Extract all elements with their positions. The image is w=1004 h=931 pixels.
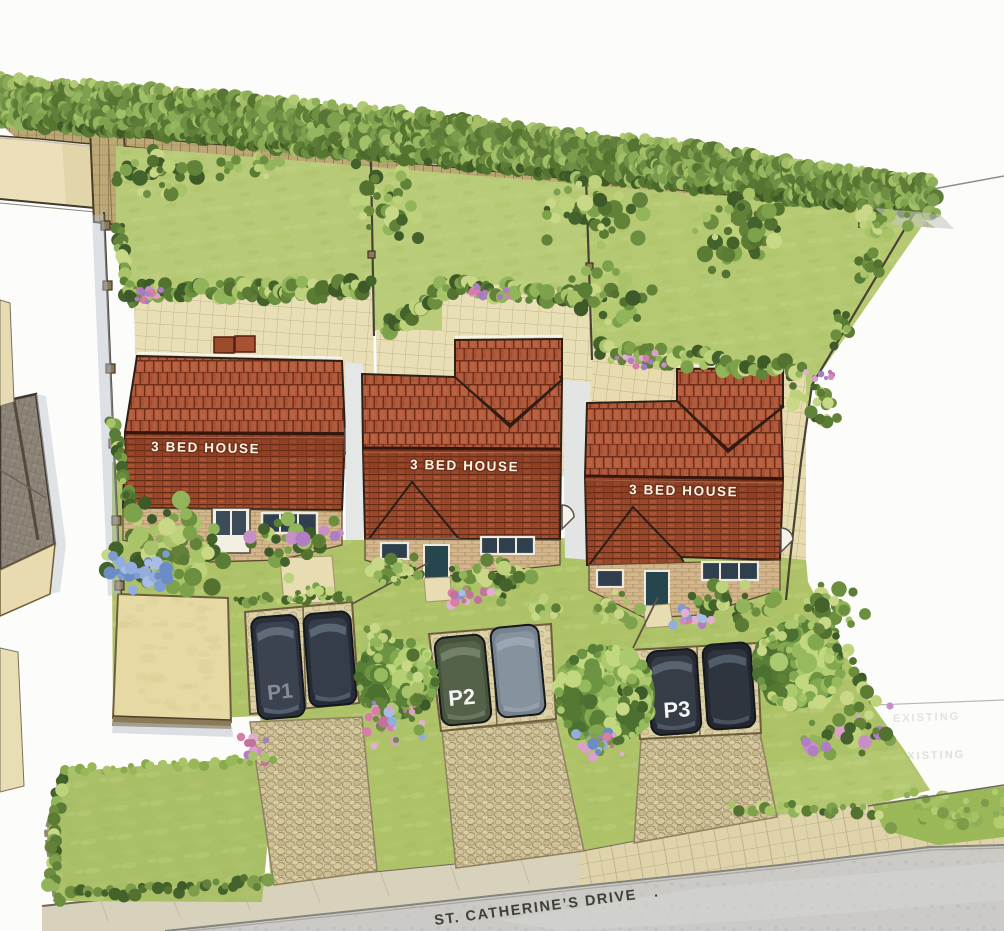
svg-text:3 BED HOUSE: 3 BED HOUSE (629, 482, 738, 499)
svg-text:EXISTING: EXISTING (893, 711, 961, 725)
svg-text:3 BED HOUSE: 3 BED HOUSE (410, 457, 519, 474)
svg-text:P3: P3 (663, 696, 692, 723)
svg-text:P1: P1 (266, 679, 294, 705)
svg-text:P2: P2 (447, 684, 476, 711)
svg-text:3 BED HOUSE: 3 BED HOUSE (151, 439, 260, 456)
